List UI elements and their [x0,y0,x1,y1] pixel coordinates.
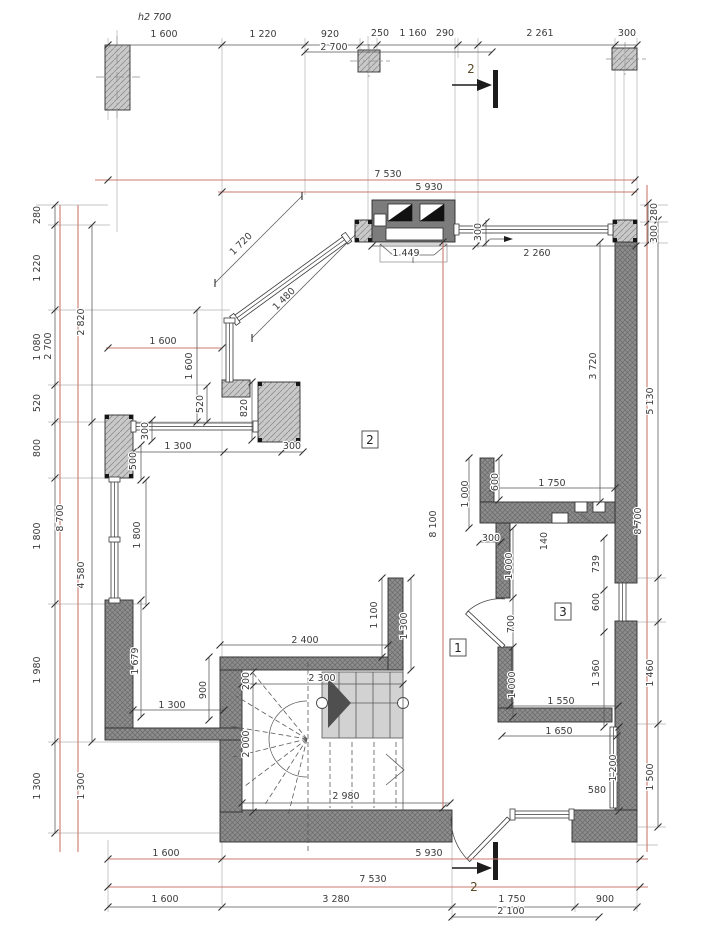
exterior-wall-bottom-right [572,810,637,842]
dimension-label: 1 100 [369,601,380,628]
dimension-label: 300 [649,225,660,243]
window-left-vertical [109,477,120,603]
dimension-label: 1 160 [399,28,426,39]
dimension-label: 1 800 [132,521,143,548]
dimension-label: 8 700 [55,504,66,531]
dimension-label: 300 [618,28,636,39]
pier-bay-corner [258,382,300,442]
dim-line [215,196,302,283]
dimension-label: 300 [473,223,484,241]
dimension-label: 1 449 [392,248,419,259]
dimension-label: 2 000 [241,730,252,757]
dimension-label: 290 [436,28,454,39]
dimension-label: 300 [482,533,500,544]
dimension-label: 2 700 [43,332,54,359]
dimension-label: 280 [649,203,660,221]
dimension-label: 1 300 [158,700,185,711]
dimension-label: 8 100 [428,510,439,537]
dimension-label: 1 650 [545,726,572,737]
section-marker-top [452,70,498,108]
dimension-label: 1 220 [32,254,43,281]
dimension-label: 520 [195,395,206,413]
window-bay-diagonal [230,232,352,325]
dimension-label: 1 600 [152,848,179,859]
room-number-label: 3 [559,605,567,619]
dimension-lines [52,42,662,921]
dimension-label: 1 679 [130,647,141,674]
dimension-label: 2 300 [308,673,335,684]
dimension-label: 5 930 [415,182,442,193]
dim-line [252,235,355,338]
dimension-label: 7 530 [359,874,386,885]
floor-plan-drawing: 1 6001 2209202 7002501 1602902 2613007 5… [0,0,708,938]
exterior-wall-left-lower [105,600,133,728]
dimension-label: 520 [32,394,43,412]
dimension-label: 1 550 [547,696,574,707]
dimension-label: 300 [283,441,301,452]
room-number-label: 2 [366,433,374,447]
dimension-label: 2 400 [291,635,318,646]
exterior-wall-left-jog [105,728,242,740]
interior-door-room1-room3 [466,599,505,648]
dimension-label: 2 700 [320,42,347,53]
column-a [105,45,130,110]
dimension-label: 140 [539,532,550,550]
dimension-label: 820 [239,399,250,417]
dimension-label: 1 300 [164,441,191,452]
pier-bay-stub [222,380,250,397]
floor-plan-sheet: 1 6001 2209202 7002501 1602902 2613007 5… [0,0,708,938]
dimension-label: 600 [591,593,602,611]
dimension-label: 1 600 [184,352,195,379]
dimension-label: 3 720 [588,352,599,379]
section-marker-label: 2 [467,62,475,76]
dimension-label: 1 300 [32,772,43,799]
dimension-label: 1 500 [645,763,656,790]
dimension-label: 2 820 [76,308,87,335]
dimension-label: 1 800 [32,522,43,549]
dimension-label: 1 300 [76,772,87,799]
dimension-label: 920 [321,29,339,40]
dimension-label: 5 130 [645,387,656,414]
dimension-label: 1 000 [507,671,518,698]
dimension-label: 900 [198,681,209,699]
dimension-label: 2 100 [497,906,524,917]
dimension-label: 1 300 [399,612,410,639]
window-bottom [510,809,574,820]
dimension-label: 580 [588,785,606,796]
dimension-label: 2 980 [332,791,359,802]
dimension-label: 8 700 [633,507,644,534]
dimension-label: 250 [371,28,389,39]
dimension-label: 280 [32,206,43,224]
dimension-label: 1 600 [150,29,177,40]
dimension-label: 2 261 [526,28,553,39]
stair-wall-north [220,657,403,670]
dimension-label: 1 220 [249,29,276,40]
dimension-label: 3 280 [322,894,349,905]
dimension-label: 700 [506,615,517,633]
dimension-label: 1 980 [32,656,43,683]
dimension-label: 1 460 [645,659,656,686]
exterior-wall-bottom-left [220,810,452,842]
dimension-label: 7 530 [374,169,401,180]
dimension-label: 800 [32,439,43,457]
window-right [619,583,626,621]
dimension-label: 4 580 [76,561,87,588]
dimension-label: 600 [490,473,501,491]
dimension-label: 300 [140,422,151,440]
dimension-label: 1 360 [591,659,602,686]
dimension-label: 1 600 [149,336,176,347]
dimension-label: 500 [128,452,139,470]
dimension-label: 1 720 [228,231,255,258]
dimension-label: 2 260 [523,248,550,259]
dimension-label: 1 750 [498,894,525,905]
window-bay-vertical [224,318,235,382]
dimension-label: 1 750 [538,478,565,489]
entry-door [451,817,510,862]
dimension-label: 1 080 [32,333,43,360]
room-and-section-labels: h2 70021322 [138,12,571,894]
ceiling-height-note: h2 700 [138,12,171,23]
winder-walk-line [269,701,307,777]
section-marker-label: 2 [470,880,478,894]
entry-direction-arrow [490,236,513,242]
dimension-label: 200 [241,672,252,690]
dimension-label: 1 600 [151,894,178,905]
newel-post-left [317,698,328,709]
dimension-label: 1 200 [608,754,619,781]
dimension-label: 1 000 [504,552,515,579]
exterior-wall-right-lower [615,621,637,812]
dimension-label: 5 930 [415,848,442,859]
dimension-label: 900 [596,894,614,905]
dimension-label: 739 [591,555,602,573]
dimension-label: 1 000 [460,480,471,507]
room-number-label: 1 [454,641,462,655]
grid-columns [96,36,646,120]
walls [105,242,637,842]
